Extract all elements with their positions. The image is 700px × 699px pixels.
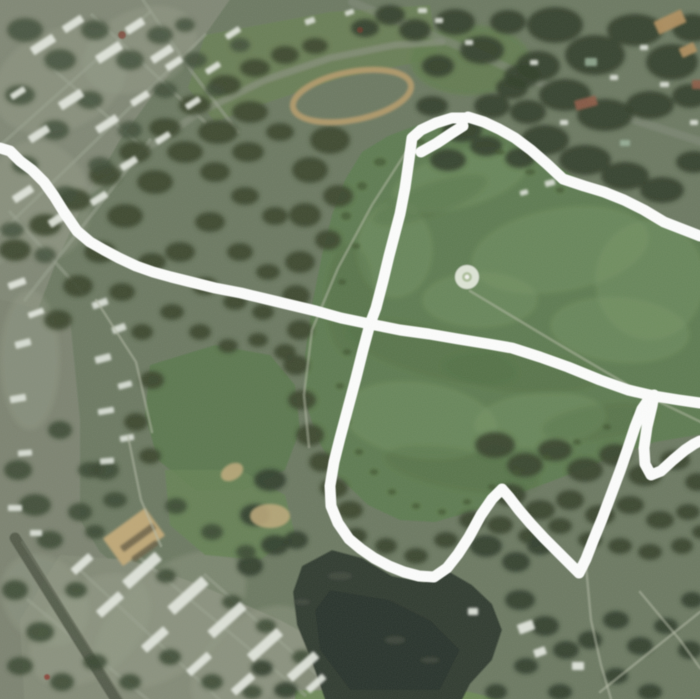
satellite-map[interactable] [0, 0, 700, 699]
image-grain-overlay [0, 0, 700, 699]
map-viewport[interactable] [0, 0, 700, 699]
